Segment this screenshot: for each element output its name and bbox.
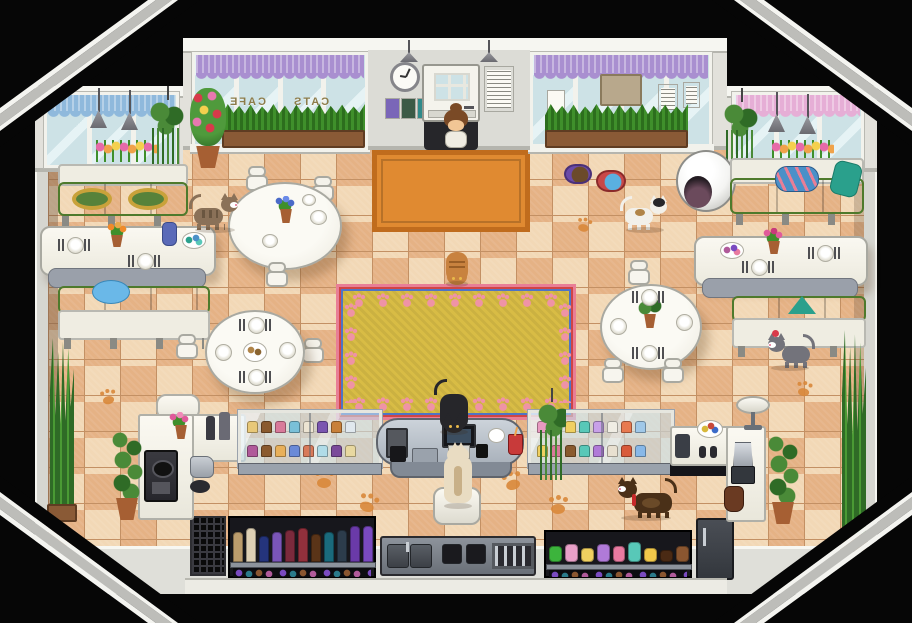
supply-bag (350, 526, 360, 562)
thermos-bottle (219, 412, 230, 440)
snake-plant-pot (840, 534, 868, 552)
pastry-item (331, 421, 342, 433)
coffee-cup-saucer (488, 428, 505, 443)
vent-grate (190, 516, 226, 576)
cafe-chair[interactable] (176, 334, 198, 362)
dinner-plate (215, 344, 232, 361)
dessert-item (613, 546, 626, 562)
place-setting (237, 368, 273, 386)
ceiling-lamp (480, 40, 498, 62)
supply-bag (233, 532, 243, 562)
cat-bed-cushion[interactable] (72, 188, 112, 210)
pastry-item (579, 445, 590, 457)
dessert-shelf-row (549, 536, 689, 562)
pastry-display-case-left[interactable] (238, 410, 382, 468)
hanging-shop-sign (600, 74, 642, 106)
round-table-b (205, 310, 305, 394)
supply-bag (285, 530, 295, 562)
pastry-item (621, 421, 632, 433)
pastry-item (317, 421, 328, 433)
dessert-item (660, 550, 673, 562)
shaker (699, 446, 706, 458)
cat-tabby[interactable] (192, 194, 238, 230)
kettle (190, 480, 210, 493)
pastry-item (635, 421, 646, 433)
wall-menu-paper (683, 82, 700, 108)
paw-print-decal (546, 494, 570, 516)
cafe-chair[interactable] (266, 262, 288, 290)
table-flower-pot-pink (762, 228, 786, 256)
dessert-shelf (544, 530, 692, 578)
milk-pitcher (190, 456, 214, 478)
blue-vase (162, 222, 177, 246)
rug-paw-border-top (351, 293, 563, 309)
grass-planter-box (222, 130, 365, 148)
rug-paw-border-left (343, 303, 359, 403)
wall-clock (390, 62, 420, 92)
coffee-machine[interactable] (144, 450, 178, 502)
cat-dome-bed[interactable] (676, 150, 736, 212)
kitchen-steel-counter (380, 536, 536, 576)
pastry-item (261, 421, 272, 433)
cat-white-patched[interactable] (623, 196, 667, 230)
supply-bag (272, 532, 282, 562)
place-setting (56, 236, 92, 254)
case-divider (601, 413, 603, 465)
pastry-item (247, 445, 258, 457)
shaker (710, 446, 717, 458)
small-plate (310, 210, 327, 225)
cat-tortoiseshell-collar[interactable] (618, 478, 674, 518)
dessert-item (644, 548, 657, 562)
kitchen-floor-trim (185, 578, 727, 594)
card-reader[interactable] (476, 444, 488, 458)
pastry-item (331, 445, 342, 457)
cat-cream-sitting[interactable] (442, 448, 474, 506)
serving-tray (390, 446, 406, 462)
dessert-shelf-lower (549, 570, 687, 577)
pastry-item (607, 421, 618, 433)
place-setting (126, 252, 162, 270)
cafe-chair[interactable] (602, 358, 624, 386)
counter-flower-pot (168, 412, 194, 442)
door-window (434, 73, 470, 101)
supply-shelf-row (233, 522, 373, 562)
paw-treat[interactable] (573, 215, 594, 235)
pastry-item (289, 421, 300, 433)
poster-purple (385, 98, 400, 119)
place-setting (630, 288, 666, 306)
place-setting (740, 258, 776, 276)
dessert-item (565, 544, 578, 562)
pastry-item (275, 445, 286, 457)
cat-black[interactable] (438, 386, 470, 432)
pastry-item (621, 445, 632, 457)
poster-green (401, 98, 416, 119)
rose-topiary (190, 88, 226, 146)
pastry-item (565, 421, 576, 433)
cat-gray-flower[interactable] (768, 334, 812, 368)
coffee-cup (262, 234, 278, 248)
coffee-cup (302, 194, 316, 206)
paw-treat[interactable] (793, 379, 814, 399)
sink-faucet (406, 542, 409, 552)
white-stool[interactable] (736, 396, 770, 432)
long-table-right-base (702, 278, 858, 298)
dessert-item (597, 544, 610, 562)
pastry-row (247, 419, 377, 433)
place-setting (630, 344, 666, 362)
grass-planter-box (545, 130, 688, 148)
cat-bed-cushion[interactable] (128, 188, 168, 210)
hanging-lamp (799, 94, 816, 134)
supply-shelf (228, 516, 376, 578)
cat-orange[interactable] (444, 244, 470, 284)
supply-shelf-lower (233, 568, 371, 577)
kibble-bowl[interactable] (564, 164, 592, 184)
brown-jug (724, 486, 744, 512)
table-flower-pot-blue (274, 196, 298, 226)
cafe-chair[interactable] (302, 338, 324, 366)
striped-pillow (775, 166, 819, 192)
pastry-item (261, 445, 272, 457)
dinner-plate (610, 318, 627, 335)
macaron-plate (720, 242, 744, 259)
cat-dome-opening (684, 176, 712, 208)
water-bowl[interactable] (596, 170, 626, 192)
entrance-mat (372, 150, 530, 232)
cafe-chair[interactable] (662, 358, 684, 386)
pastry-item (345, 445, 356, 457)
window-sign-cafe: CAFE (228, 92, 266, 110)
curtain-valance-purple (196, 55, 364, 73)
dessert-item (628, 542, 641, 562)
case-divider (309, 413, 311, 465)
table-flower-pot-orange (106, 222, 128, 248)
refrigerator[interactable] (696, 518, 734, 580)
pastry-item (275, 421, 286, 433)
supply-bag (246, 528, 256, 562)
round-table-a (228, 182, 342, 270)
flower-notice-poster (484, 66, 514, 112)
supply-bag (324, 532, 334, 562)
supply-bag (259, 536, 269, 562)
supply-bag (311, 534, 321, 562)
game-viewport[interactable]: CAFE CATS (0, 0, 912, 623)
pastry-item (317, 445, 328, 457)
jade-plant (110, 428, 144, 500)
pastry-item (289, 445, 300, 457)
thermos-bottle (206, 416, 215, 440)
soda-cup (508, 434, 523, 455)
npc-visitor-girl[interactable] (441, 108, 471, 152)
pastry-row (247, 443, 377, 457)
hanging-lamp (768, 92, 785, 132)
hanging-lamp (121, 90, 138, 130)
sink-basin (410, 544, 432, 568)
fryer-basket (466, 544, 486, 564)
ceiling-lamp (400, 40, 418, 62)
supply-bag (298, 528, 308, 562)
couch-legs (736, 214, 858, 225)
pastry-item (565, 445, 576, 457)
hanging-lamp (90, 88, 107, 128)
supply-bag (337, 530, 347, 562)
pastry-item (635, 445, 646, 457)
hanging-ivy (536, 400, 566, 480)
dessert-item (549, 546, 562, 562)
dessert-item (581, 548, 594, 562)
pastry-item (247, 421, 258, 433)
fryer-basket (442, 544, 462, 564)
supply-bag (363, 526, 373, 562)
dinner-plate (676, 314, 693, 331)
pastry-item (345, 421, 356, 433)
mug (675, 434, 690, 458)
blue-cushion (92, 280, 130, 304)
curtain-valance-purple (534, 55, 708, 73)
jade-plant (766, 432, 800, 504)
dessert-item (676, 546, 689, 562)
macaron-plate (697, 420, 723, 438)
place-setting (806, 244, 842, 262)
blender[interactable] (730, 442, 754, 484)
cookie-plate (243, 342, 267, 362)
place-setting (237, 316, 273, 334)
snake-plant-pot (47, 504, 77, 522)
exhaust-grille (492, 543, 534, 569)
dinner-plate (279, 342, 296, 359)
paw-treat[interactable] (97, 387, 119, 408)
pastry-item (607, 445, 618, 457)
macaron-plate (182, 232, 206, 249)
pastry-item (579, 421, 590, 433)
rug-paw-border-right (557, 303, 573, 403)
